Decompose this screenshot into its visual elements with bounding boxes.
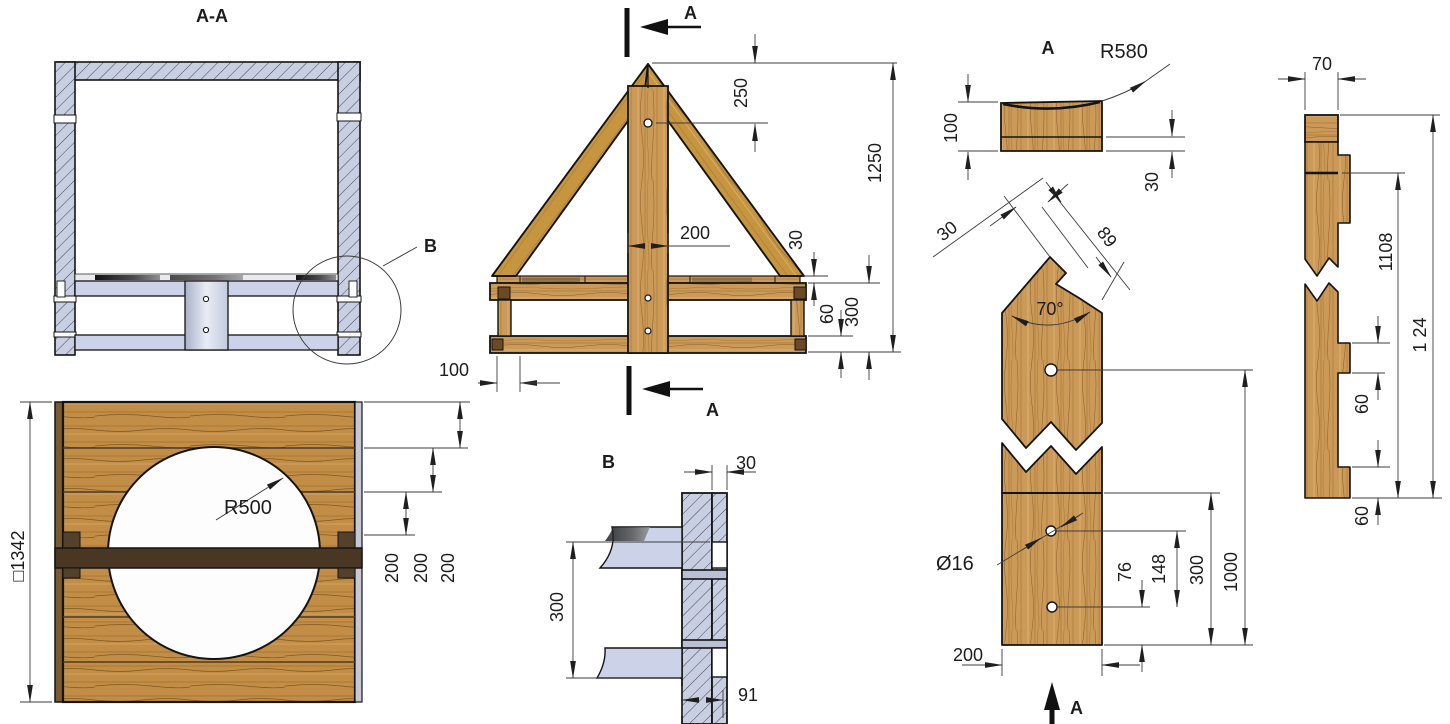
cut-arrow-head xyxy=(642,381,670,397)
wall-joint xyxy=(54,332,76,337)
strip-segment xyxy=(95,275,160,280)
rail-block xyxy=(794,287,806,299)
right-wall xyxy=(338,62,360,355)
dim-dia16: Ø16 xyxy=(936,553,974,575)
plank-upper xyxy=(1305,142,1350,276)
wall-slot xyxy=(57,281,65,297)
dim-30: 30 xyxy=(786,230,806,250)
plank-top-block xyxy=(1305,115,1338,142)
cross-bar xyxy=(55,548,362,568)
rail-block xyxy=(795,339,806,350)
bolt-hole xyxy=(1047,602,1057,612)
dim-100: 100 xyxy=(439,360,469,380)
cleat xyxy=(63,568,80,578)
dim-300: 300 xyxy=(1187,555,1207,585)
view-plank: 70 60 60 1108 1 24 xyxy=(1278,54,1442,526)
dim-200: 200 xyxy=(953,645,983,665)
dim-angle-70: 70° xyxy=(1036,299,1063,319)
dim-1250: 1250 xyxy=(865,143,885,183)
dim-1342: □1342 xyxy=(8,531,28,582)
dado-notch xyxy=(712,648,727,677)
detail-leader xyxy=(383,247,417,266)
wall-joint xyxy=(54,115,76,123)
plank-dim-lines xyxy=(1278,72,1442,525)
cut-label-top: A xyxy=(684,3,697,23)
rail-block xyxy=(498,287,510,299)
view-detail-b: B 30 300 91 xyxy=(547,452,758,724)
post-upper xyxy=(1002,257,1102,450)
view-post: 70° 30 89 Ø16 76 148 300 1000 200 xyxy=(933,178,1253,724)
dim-200-3: 200 xyxy=(382,553,402,583)
dim-200: 200 xyxy=(680,223,710,243)
bolt-hole xyxy=(203,327,208,332)
plank-lower xyxy=(1305,283,1350,498)
dim-60: 60 xyxy=(817,304,837,324)
cleat xyxy=(338,532,355,548)
view-panel: R500 □1342 200 200 200 xyxy=(8,402,470,702)
dim-300: 300 xyxy=(842,297,862,327)
dim-148: 148 xyxy=(1149,554,1169,584)
dim-200-2: 200 xyxy=(411,553,431,583)
view-cap: A R580 100 30 xyxy=(941,38,1185,192)
wall-section xyxy=(682,493,712,724)
r580-leader xyxy=(1102,81,1146,101)
dim-30: 30 xyxy=(1142,172,1162,192)
center-column xyxy=(185,281,228,350)
dim-91: 91 xyxy=(738,685,758,705)
dim-1000: 1000 xyxy=(1221,552,1241,592)
dim-60-upper: 60 xyxy=(1352,394,1372,414)
bolt-hole xyxy=(203,296,208,301)
section-title: A-A xyxy=(196,6,228,26)
dim-60-lower: 60 xyxy=(1352,506,1372,526)
wall-joint xyxy=(337,113,361,121)
dim-89-notch: 89 xyxy=(1093,223,1121,251)
dim-1108: 1108 xyxy=(1376,233,1396,272)
dim-300: 300 xyxy=(547,592,567,622)
view-section-aa: A-A B xyxy=(54,6,437,364)
dim-200-1: 200 xyxy=(438,553,458,583)
dim-r500: R500 xyxy=(224,497,272,519)
cut-label-bottom: A xyxy=(706,400,719,420)
cut-arrow-head xyxy=(1044,682,1060,710)
wall-joint-band xyxy=(682,640,727,648)
bolt-hole xyxy=(645,295,651,301)
bolt-hole xyxy=(645,328,651,334)
bolt-hole xyxy=(644,119,652,127)
view-truss: A A xyxy=(439,3,901,420)
detail-ref-label: B xyxy=(424,236,437,256)
rail-broken-section-bottom xyxy=(597,648,682,678)
dim-100: 100 xyxy=(941,113,961,143)
strip-segment xyxy=(170,275,243,280)
r580-leader-tail xyxy=(1146,64,1170,81)
dim-30: 30 xyxy=(736,453,756,473)
strip-segment xyxy=(296,275,336,280)
wall-joint-band xyxy=(682,570,727,579)
dim-1124: 1 24 xyxy=(1410,317,1430,352)
dim-70: 70 xyxy=(1312,54,1332,74)
dim-30-notch: 30 xyxy=(933,217,961,245)
wall-joint xyxy=(337,332,361,337)
bolt-hole xyxy=(1045,364,1057,376)
wall-outer-layer xyxy=(712,493,727,724)
cut-label: A xyxy=(1070,698,1083,718)
side-stud xyxy=(791,300,804,336)
detail-b-label: B xyxy=(602,452,615,472)
rail-block xyxy=(492,339,503,350)
board-shade xyxy=(692,278,752,283)
cleat xyxy=(338,568,355,578)
wall-slot xyxy=(349,281,357,297)
dim-250: 250 xyxy=(731,78,751,108)
dado-notch xyxy=(712,542,727,568)
post-lower xyxy=(1002,443,1102,645)
left-wall xyxy=(55,62,75,355)
cleat xyxy=(63,532,80,548)
dim-r580: R580 xyxy=(1100,41,1148,63)
cap-label: A xyxy=(1042,38,1055,58)
side-stud xyxy=(498,300,511,336)
top-wall xyxy=(57,62,360,80)
drawing-canvas: A-A B A A xyxy=(0,0,1450,724)
drawing-page: A-A B A A xyxy=(0,0,1450,724)
dim-76: 76 xyxy=(1115,562,1135,582)
cut-arrow-head xyxy=(640,19,668,35)
board-shade xyxy=(522,278,580,283)
